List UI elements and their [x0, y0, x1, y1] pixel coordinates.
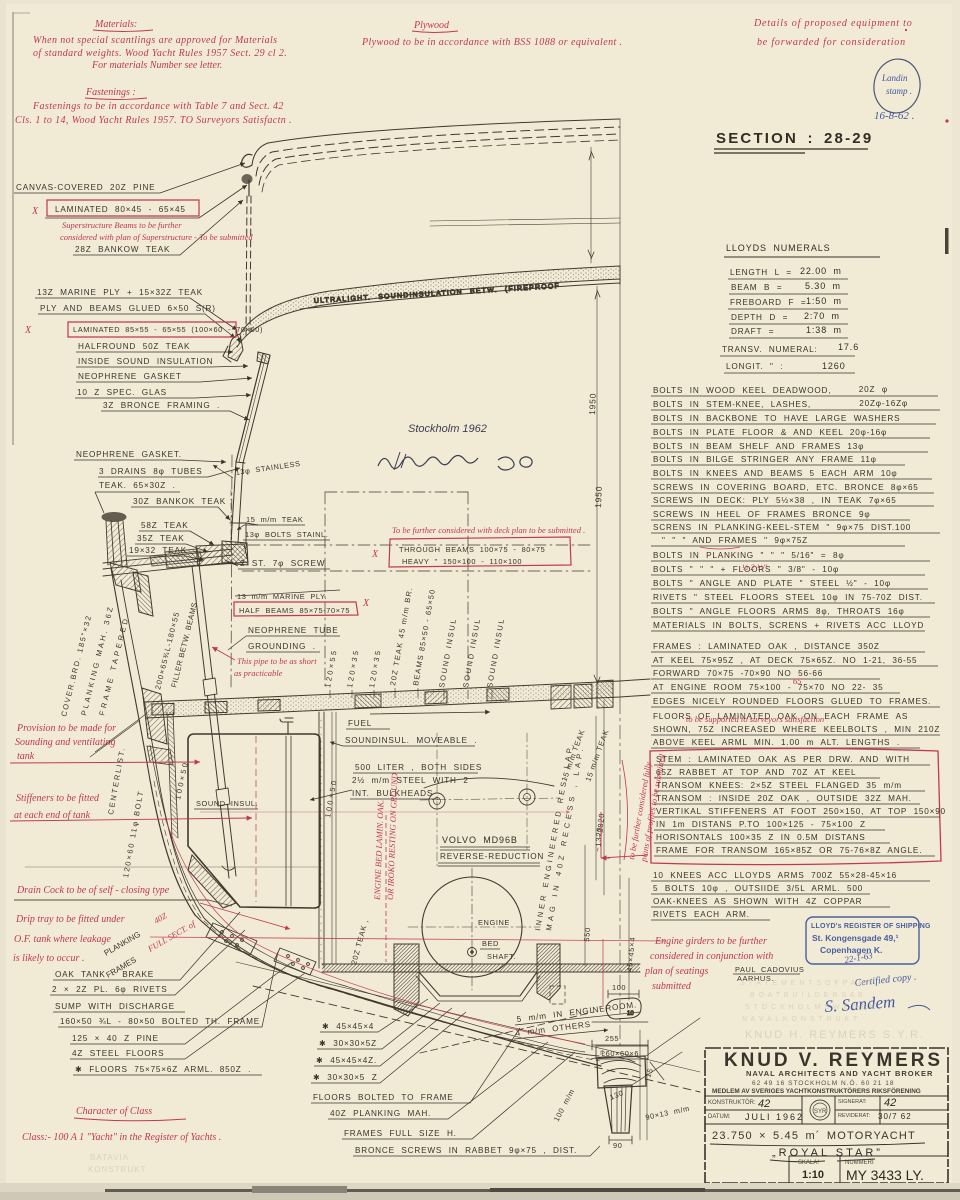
svg-text:KONSTRUKTÖR:: KONSTRUKTÖR:	[708, 1099, 756, 1106]
svg-text:500 LITER , BOTH SIDES: 500 LITER , BOTH SIDES	[355, 763, 482, 772]
svg-text:LONGIT. " :: LONGIT. " :	[726, 362, 783, 371]
svg-text:BEAM B =: BEAM B =	[731, 283, 782, 292]
svg-text:MY 3433 LY.: MY 3433 LY.	[846, 1167, 924, 1183]
svg-text:SCREWS IN HEEL OF FRAMES: SCREWS IN HEEL OF FRAMES BRONCE 9φ	[653, 510, 870, 519]
svg-text:90: 90	[613, 1141, 622, 1150]
svg-text:S T O C K H O L M S W E D E N: S T O C K H O L M S W E D E N	[745, 1004, 876, 1011]
svg-text:42: 42	[758, 1098, 770, 1110]
svg-text:1:50 m: 1:50 m	[806, 296, 842, 306]
svg-text:1950: 1950	[593, 486, 604, 508]
svg-text:KNUD V. REYMERS: KNUD V. REYMERS	[724, 1050, 942, 1071]
svg-text:✱ 45×45×4: ✱ 45×45×4	[322, 1022, 374, 1031]
svg-text:22.00 m: 22.00 m	[800, 266, 842, 276]
svg-text:Character of Class: Character of Class	[76, 1106, 152, 1117]
svg-text:Drain Cock to be of self - cl: Drain Cock to be of self - closing type	[16, 885, 170, 896]
svg-text:CANVAS-COVERED 20Z PINE: CANVAS-COVERED 20Z PINE	[16, 183, 155, 192]
svg-text:X: X	[24, 325, 32, 336]
svg-text:SCREWS IN COVERING BOARD, ET: SCREWS IN COVERING BOARD, ETC. BRONCE 8φ…	[653, 483, 919, 492]
svg-text:✱ 45×45×4Z.: ✱ 45×45×4Z.	[316, 1056, 377, 1065]
svg-text:JULI 1962: JULI 1962	[745, 1112, 804, 1122]
svg-text:Landin: Landin	[881, 73, 908, 83]
svg-text:30/7 62: 30/7 62	[878, 1112, 912, 1121]
svg-text:TRANSV. NUMERAL:: TRANSV. NUMERAL:	[722, 345, 818, 354]
svg-text:LAMINATED 80×45 - 65×45: LAMINATED 80×45 - 65×45	[55, 205, 186, 214]
svg-text:10 KNEES ACC LLOYDS ARMS: 10 KNEES ACC LLOYDS ARMS 700Z 55×28-45×1…	[653, 871, 897, 880]
svg-text:4Z STEEL FLOORS: 4Z STEEL FLOORS	[72, 1049, 164, 1058]
svg-text:Plywood: Plywood	[413, 20, 450, 31]
svg-text:42: 42	[884, 1097, 896, 1109]
svg-text:13φ BOLTS STAINL.: 13φ BOLTS STAINL.	[245, 530, 328, 539]
svg-text:BOLTS IN STEM-KNEE, LASHES,: BOLTS IN STEM-KNEE, LASHES,	[653, 400, 811, 409]
svg-text:FREBOARD F =: FREBOARD F =	[730, 298, 806, 307]
svg-text:35Z TEAK: 35Z TEAK	[137, 534, 185, 543]
svg-text:BATAVIA: BATAVIA	[90, 1153, 129, 1162]
svg-text:PAUL CADOVIUS: PAUL CADOVIUS	[735, 965, 804, 974]
svg-text:20Zφ-16Zφ: 20Zφ-16Zφ	[859, 399, 908, 408]
svg-text:AT KEEL 75×95Z , AT DECK 75: AT KEEL 75×95Z , AT DECK 75×65Z. NO 1-21…	[653, 656, 917, 665]
svg-text:TRANSOM KNEES: 2×5Z STEEL: TRANSOM KNEES: 2×5Z STEEL FLANGED 35 m/m	[656, 781, 902, 790]
svg-text:DATUM:: DATUM:	[708, 1114, 731, 1120]
svg-text:HALFROUND 50Z TEAK: HALFROUND 50Z TEAK	[78, 342, 190, 351]
svg-text:FLOORS BOLTED TO FRAME: FLOORS BOLTED TO FRAME	[313, 1093, 453, 1102]
svg-text:BOLTS " ANGLE FLOORS AR: BOLTS " ANGLE FLOORS ARMS 8φ, THROATS 16…	[653, 607, 905, 616]
svg-text:BED: BED	[482, 939, 499, 948]
svg-text:as practicable: as practicable	[234, 668, 283, 678]
svg-text:submitted: submitted	[652, 981, 692, 992]
svg-text:2½ m/m STEEL WITH 2: 2½ m/m STEEL WITH 2	[352, 776, 469, 785]
svg-text:1:38 m: 1:38 m	[806, 325, 842, 335]
svg-text:KONSTRUKT: KONSTRUKT	[88, 1165, 146, 1174]
svg-text:5.30 m: 5.30 m	[805, 281, 841, 291]
svg-text:AT ENGINE ROOM 75×100 - 75×70: AT ENGINE ROOM 75×100 - 75×70 NO 22- 35	[653, 683, 883, 692]
svg-text:20Z φ: 20Z φ	[859, 385, 888, 394]
svg-text:16-8-62 .: 16-8-62 .	[874, 110, 914, 122]
svg-text:of standard weights. Wood Yac: of standard weights. Wood Yacht Rules 19…	[33, 48, 287, 59]
svg-text:SIGNERAT:: SIGNERAT:	[838, 1099, 867, 1105]
svg-text:MEDLEM AV SVERIGES YACHTKONSTR: MEDLEM AV SVERIGES YACHTKONSTRUKTÖRERS R…	[712, 1086, 921, 1095]
svg-text:to be supported to surveyors s: to be supported to surveyors satisfactio…	[686, 714, 824, 724]
svg-text:65: 65	[793, 676, 802, 686]
svg-text:3 DRAINS 8φ TUBES: 3 DRAINS 8φ TUBES	[99, 467, 203, 476]
svg-text:NEOPHRENE TUBE: NEOPHRENE TUBE	[248, 626, 339, 635]
svg-text:28Z BANKOW TEAK: 28Z BANKOW TEAK	[75, 245, 170, 254]
svg-text:Stockholm 1962: Stockholm 1962	[408, 423, 487, 435]
svg-text:SKALA!: SKALA!	[798, 1160, 819, 1166]
svg-text:Plywood to be in accordance w: Plywood to be in accordance with BSS 108…	[361, 37, 622, 48]
svg-text:255: 255	[605, 1034, 619, 1043]
svg-text:SCRENS IN PLANKING-KEEL-STE: SCRENS IN PLANKING-KEEL-STEM " 9φ×75 DIS…	[653, 523, 911, 532]
svg-text:ENGINE: ENGINE	[478, 918, 510, 927]
svg-text:be forwarded for consideration: be forwarded for consideration	[757, 37, 906, 48]
svg-text:INSIDE SOUND INSULATION: INSIDE SOUND INSULATION	[78, 357, 213, 366]
svg-text:TRANSOM : INSIDE 20Z OAK , O: TRANSOM : INSIDE 20Z OAK , OUTSIDE 32Z M…	[656, 794, 912, 803]
svg-text:BOLTS IN PLATE FLOOR & AND K: BOLTS IN PLATE FLOOR & AND KEEL 20φ-16φ	[653, 428, 887, 437]
svg-text:To be further considered with: To be further considered with deck plan …	[392, 525, 585, 535]
svg-text:550: 550	[582, 927, 592, 943]
svg-text:2:70 m: 2:70 m	[804, 311, 840, 321]
svg-text:When not special scantlings ar: When not special scantlings are approved…	[33, 35, 277, 46]
svg-text:3Z BRONCE FRAMING .: 3Z BRONCE FRAMING .	[103, 401, 220, 410]
svg-text:DEPTH D =: DEPTH D =	[731, 313, 788, 322]
svg-text:½ 2 ½": ½ 2 ½"	[742, 562, 767, 572]
svg-text:ABOVE KEEL ARML MIN. 1.00 m: ABOVE KEEL ARML MIN. 1.00 m ALT. LENGTHS…	[653, 738, 900, 747]
svg-text:STEM : LAMINATED OAK AS P: STEM : LAMINATED OAK AS PER DRW. AND WIT…	[656, 755, 910, 764]
svg-text:23.750 × 5.45 m´ MOTORYACH: 23.750 × 5.45 m´ MOTORYACHT	[712, 1130, 916, 1142]
svg-text:REVIDERAT:: REVIDERAT:	[838, 1113, 870, 1119]
svg-text:at each end of tank: at each end of tank	[14, 810, 91, 821]
svg-text:THROUGH BEAMS 100×75 - 80: THROUGH BEAMS 100×75 - 80×75	[399, 545, 545, 554]
svg-text:160×50 ¾L - 80×50 BOLTED TH: 160×50 ¾L - 80×50 BOLTED TH. FRAME	[60, 1017, 260, 1026]
svg-text:1950: 1950	[587, 393, 598, 415]
svg-text:" " " AND FRAM: " " " AND FRAMES " 9φ×75Z	[662, 536, 808, 545]
svg-text:BOLTS IN PLANKING ": BOLTS IN PLANKING " " " 5/16" = 8φ	[653, 551, 844, 560]
svg-text:✱ FLOORS 75×75×6Z ARML. 8: ✱ FLOORS 75×75×6Z ARML. 850Z .	[75, 1065, 251, 1074]
svg-text:Materials:: Materials:	[94, 19, 137, 30]
svg-text:NEOPHRENE GASKET.: NEOPHRENE GASKET.	[76, 450, 182, 459]
svg-text:15 m/m TEAK: 15 m/m TEAK	[246, 515, 303, 524]
svg-text:HALF BEAMS 85×75-70×75: HALF BEAMS 85×75-70×75	[239, 606, 350, 615]
svg-text:BRONCE SCREWS IN RABBET: BRONCE SCREWS IN RABBET 9φ×75 , DIST.	[355, 1146, 577, 1155]
svg-text:EDGES NICELY ROUNDED FLOORS: EDGES NICELY ROUNDED FLOORS GLUED TO FRA…	[653, 697, 931, 706]
svg-text:TEAK. 65×30Z .: TEAK. 65×30Z .	[99, 481, 176, 490]
svg-text:Provision to be made for: Provision to be made for	[16, 723, 116, 734]
svg-text:plan of seatings: plan of seatings	[644, 966, 708, 977]
svg-text:IN 1m DISTANS P.TO 100×125: IN 1m DISTANS P.TO 100×125 - 75×100 Z	[656, 820, 866, 829]
svg-text:100: 100	[612, 983, 626, 992]
svg-text:NAVAL ARCHITECTS AND YACHT BRO: NAVAL ARCHITECTS AND YACHT BROKER	[746, 1069, 933, 1078]
svg-text:17.6: 17.6	[838, 342, 859, 352]
svg-text:Cls. 1 to 14, Wood Yacht Rules: Cls. 1 to 14, Wood Yacht Rules 1957. TO …	[15, 115, 292, 126]
svg-text:NUMMERI: NUMMERI	[845, 1160, 874, 1166]
svg-text:O.F. tank where leakage: O.F. tank where leakage	[14, 934, 111, 945]
svg-text:HORISONTALS 100×35 Z IN 0.5: HORISONTALS 100×35 Z IN 0.5M DISTANS	[656, 833, 866, 842]
svg-text:13Z MARINE PLY + 15×32Z TEAK: 13Z MARINE PLY + 15×32Z TEAK	[37, 288, 203, 297]
svg-text:OAK TANK - BRAKE: OAK TANK - BRAKE	[55, 970, 154, 979]
svg-text:REVERSE-REDUCTION: REVERSE-REDUCTION	[440, 852, 544, 861]
svg-text:BOLTS IN BEAM SHELF AND FRAM: BOLTS IN BEAM SHELF AND FRAMES 13φ	[653, 442, 864, 451]
svg-text:Engine girders to be further: Engine girders to be further	[654, 936, 767, 947]
svg-text:LAMINATED 85×55 - 65×55 (100×: LAMINATED 85×55 - 65×55 (100×60 - 70×60)	[73, 325, 263, 334]
svg-text:RIVETS EACH ARM.: RIVETS EACH ARM.	[653, 910, 750, 919]
svg-text:Sounding and ventilating: Sounding and ventilating	[15, 737, 116, 748]
svg-text:1:10: 1:10	[802, 1169, 824, 1181]
svg-text:LLOYD's REGISTER OF SHIPPING: LLOYD's REGISTER OF SHIPPING	[811, 923, 931, 930]
svg-text:SOUND INSUL.: SOUND INSUL.	[196, 799, 258, 808]
svg-text:Fastenings :: Fastenings :	[85, 87, 136, 98]
svg-text:BOLTS IN WOOD KEEL DEADWOOD: BOLTS IN WOOD KEEL DEADWOOD,	[653, 386, 831, 395]
svg-text:FRAME FOR TRANSOM 165×85Z O: FRAME FOR TRANSOM 165×85Z OR 75-76×8Z AN…	[656, 846, 922, 855]
svg-text:10: 10	[627, 1011, 634, 1017]
svg-text:NEOPHRENE GASKET: NEOPHRENE GASKET	[78, 372, 182, 381]
svg-text:X: X	[371, 549, 379, 560]
svg-text:X: X	[31, 206, 39, 217]
svg-text:BOLTS IN BACKBONE TO HAVE L: BOLTS IN BACKBONE TO HAVE LARGE WASHERS	[653, 414, 900, 423]
svg-text:OAK-KNEES AS SHOWN WITH: OAK-KNEES AS SHOWN WITH 4Z COPPAR	[653, 897, 862, 906]
svg-text:DRAFT =: DRAFT =	[731, 327, 774, 336]
svg-text:X: X	[362, 598, 370, 609]
svg-text:40Z PLANKING MAH.: 40Z PLANKING MAH.	[330, 1109, 431, 1118]
svg-text:FRAMES : LAMINATED OAK , DI: FRAMES : LAMINATED OAK , DISTANCE 350Z	[653, 642, 880, 651]
svg-text:is likely to occur .: is likely to occur .	[13, 953, 84, 964]
svg-text:SUMP WITH DISCHARGE: SUMP WITH DISCHARGE	[55, 1002, 175, 1011]
svg-text:62 49 16 STOCKHOLM N.Ö.: 62 49 16 STOCKHOLM N.Ö. 60 21 18	[752, 1079, 894, 1087]
svg-text:PLY AND BEAMS GLUED 6×50 S: PLY AND BEAMS GLUED 6×50 S(R)	[40, 304, 216, 313]
svg-text:St. Kongensgade 49,¹: St. Kongensgade 49,¹	[812, 933, 899, 943]
svg-text:B O A T B U I L D E R S A B: B O A T B U I L D E R S A B	[750, 992, 864, 999]
svg-text:LENGTH L =: LENGTH L =	[730, 268, 792, 277]
svg-text:SCREWS IN DECK: PLY 5½×38 , I: SCREWS IN DECK: PLY 5½×38 , IN TEAK 7φ×6…	[653, 496, 897, 505]
svg-text:5 BOLTS 10φ , OUTSIIDE 3/: 5 BOLTS 10φ , OUTSIIDE 3/5L ARML. 500	[653, 884, 863, 893]
svg-text:Fastenings to be in accordanc: Fastenings to be in accordance with Tabl…	[32, 101, 284, 112]
svg-text:considered in conjunction with: considered in conjunction with	[650, 951, 773, 962]
svg-text:✱ 30×30×5 Z: ✱ 30×30×5 Z	[313, 1073, 378, 1082]
svg-text:BOLTS " ANGLE AND PLATE: BOLTS " ANGLE AND PLATE " STEEL ½" - 10φ	[653, 579, 891, 588]
svg-text:125 × 40 Z PINE: 125 × 40 Z PINE	[72, 1034, 159, 1043]
svg-text:SECTION : 28-29: SECTION : 28-29	[716, 130, 873, 147]
svg-text:considered with plan of Supers: considered with plan of Superstructure -…	[60, 232, 253, 242]
svg-text:19×32 TEAK: 19×32 TEAK	[129, 546, 187, 555]
svg-text:65Z RABBET AT TOP AND 70Z A: 65Z RABBET AT TOP AND 70Z AT KEEL	[656, 768, 856, 777]
svg-text:2 × 2Z PL. 6φ RIVETS: 2 × 2Z PL. 6φ RIVETS	[52, 985, 168, 994]
svg-text:FRAMES FULL SIZE H.: FRAMES FULL SIZE H.	[344, 1129, 457, 1138]
svg-text:KNUD H. REYMERS S.Y.R.: KNUD H. REYMERS S.Y.R.	[745, 1029, 925, 1041]
svg-text:BOLTS IN KNEES AND BEAMS 5: BOLTS IN KNEES AND BEAMS 5 EACH ARM 10φ	[653, 469, 898, 478]
svg-text:1260: 1260	[822, 361, 846, 371]
svg-text:LLOYDS NUMERALS: LLOYDS NUMERALS	[726, 243, 831, 253]
svg-text:Stiffeners to be fitted: Stiffeners to be fitted	[16, 793, 100, 804]
svg-text:✱ 30×30×5Z: ✱ 30×30×5Z	[319, 1039, 377, 1048]
svg-text:Details of proposed equipment: Details of proposed equipment to	[753, 18, 913, 29]
svg-text:HEAVY " 1: HEAVY " 150×100 - 110×100	[402, 557, 522, 566]
svg-text:This pipe to be as short: This pipe to be as short	[237, 656, 317, 666]
svg-text:Superstructure Beams to be fur: Superstructure Beams to be further	[62, 220, 182, 230]
svg-text:30Z BANKOK TEAK: 30Z BANKOK TEAK	[133, 497, 226, 506]
svg-text:VOLVO MD96B: VOLVO MD96B	[442, 835, 518, 845]
svg-text:SYR: SYR	[814, 1109, 827, 1115]
svg-text:Class:- 100 A 1 "Yacht" in: Class:- 100 A 1 "Yacht" in the Register …	[22, 1132, 221, 1143]
svg-text:SHOWN, 75Z INCREASED WHERE: SHOWN, 75Z INCREASED WHERE KEELBOLTS , M…	[653, 725, 940, 734]
svg-text:58Z TEAK: 58Z TEAK	[141, 521, 189, 530]
svg-text:N A V A L K O N S T R U K T: N A V A L K O N S T R U K T	[742, 1016, 858, 1023]
svg-text:10 Z SPEC. GLAS: 10 Z SPEC. GLAS	[77, 388, 167, 397]
svg-text:SOUNDINSUL. MOVEABLE .: SOUNDINSUL. MOVEABLE .	[345, 736, 477, 745]
svg-text:GROUNDING .: GROUNDING .	[248, 642, 316, 651]
svg-text:tank: tank	[17, 751, 35, 762]
svg-text:S T A T E M E N T S O F P A: S T A T E M E N T S O F P A R T	[740, 980, 873, 987]
svg-text:RIVETS " STEEL FLOORS: RIVETS " STEEL FLOORS STEEL 10φ IN 75-70…	[653, 593, 923, 602]
svg-text:MATERIALS IN BOLTS, SCRENS: MATERIALS IN BOLTS, SCRENS + RIVETS ACC …	[653, 621, 924, 630]
svg-text:For materials Number see lette: For materials Number see letter.	[91, 60, 222, 71]
svg-text:VERTIKAL STIFFENERS AT FOOT: VERTIKAL STIFFENERS AT FOOT 250×150, AT …	[656, 807, 946, 816]
svg-text:stamp .: stamp .	[886, 86, 912, 96]
svg-text:Drip tray to be fitted under: Drip tray to be fitted under	[15, 914, 125, 925]
svg-text:⅊60×60×6: ⅊60×60×6	[600, 1049, 639, 1058]
svg-text:2 ST. 7φ SCREW: 2 ST. 7φ SCREW	[240, 559, 325, 568]
svg-text:FUEL: FUEL	[348, 719, 372, 728]
svg-text:BOLTS IN BILGE STRINGER ANY: BOLTS IN BILGE STRINGER ANY FRAME 11φ	[653, 455, 877, 464]
svg-text:SHAFT.: SHAFT.	[487, 952, 516, 961]
